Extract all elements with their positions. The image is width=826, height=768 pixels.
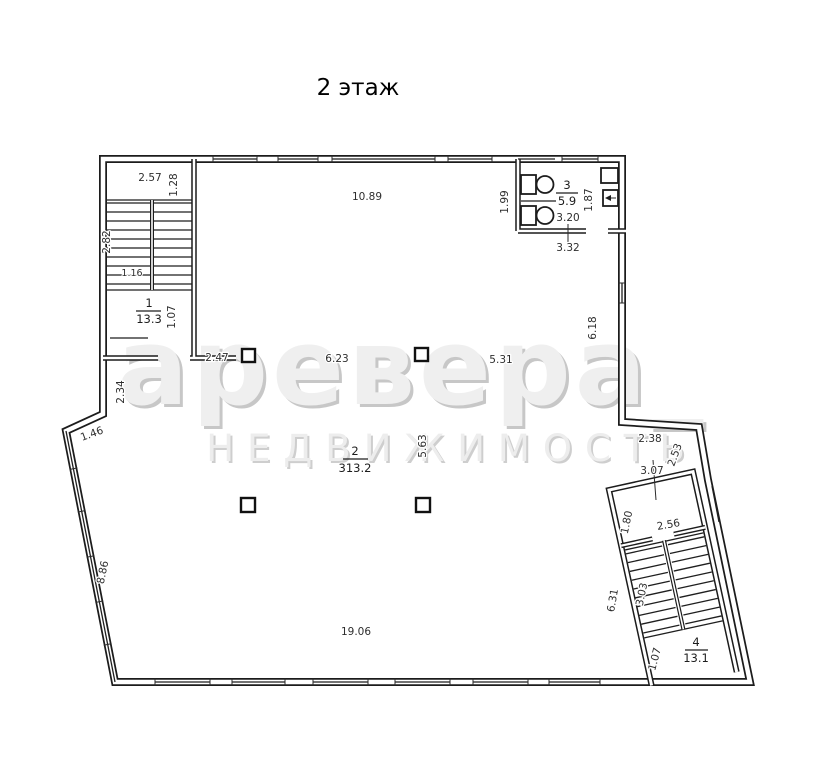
room-2-number: 2 (351, 444, 358, 458)
dim-stair4-vest-depth: 1.80 (619, 510, 636, 535)
column (415, 348, 428, 361)
dim-stair1-exit: 1.07 (166, 305, 178, 328)
dim-stair4-vest-width: 2.56 (656, 517, 681, 533)
dim-stair4-flight: 3.03 (634, 582, 651, 607)
toilet-tank-2 (521, 206, 536, 225)
toilet-bowl-1 (537, 176, 554, 193)
dim-stair1-flight: 2.82 (101, 230, 113, 253)
dim-column-span-2: 5.31 (489, 354, 512, 366)
room-2-area: 313.2 (339, 461, 372, 475)
toilet-tank-1 (521, 175, 536, 194)
toilet-bowl-2 (537, 207, 554, 224)
dim-wc-width: 3.20 (556, 212, 579, 224)
column (416, 498, 430, 512)
dim-right-offset: 2.38 (638, 433, 661, 445)
column (242, 349, 255, 362)
dim-stair4-side: 6.31 (605, 588, 621, 613)
dim-wc-bottom: 3.32 (556, 242, 579, 254)
floor-plan-svg: аревера_ аревера_ НЕДВИЖИМОСТЬ НЕДВИЖИМО… (0, 0, 826, 768)
dim-column-span-1: 6.23 (325, 353, 348, 365)
floor-plan-page: аревера_ аревера_ НЕДВИЖИМОСТЬ НЕДВИЖИМО… (0, 0, 826, 768)
room-3-area: 5.9 (558, 194, 576, 208)
page-title: 2 этаж (317, 75, 400, 101)
column (241, 498, 255, 512)
room-1-area: 13.3 (136, 312, 162, 326)
dim-left-slant: 8.86 (95, 559, 112, 585)
dim-stair1-width: 2.57 (138, 172, 161, 184)
room-4-area: 13.1 (683, 651, 709, 665)
dim-stair4-exit: 1.07 (646, 646, 664, 672)
dim-left-upper: 2.34 (115, 380, 127, 404)
dim-stair4-top: 3.07 (640, 465, 663, 477)
dim-wc-depth: 1.99 (499, 190, 511, 213)
dim-bottom: 19.06 (341, 626, 371, 638)
dim-right-wall: 6.18 (587, 316, 599, 339)
room-4-number: 4 (692, 635, 699, 649)
duct-niche (601, 168, 618, 183)
room-1-number: 1 (145, 296, 152, 310)
dim-hall-mid: 5.63 (417, 434, 429, 457)
dim-wc-right: 1.87 (583, 188, 595, 211)
dim-stair1-inner: 1.16 (121, 268, 142, 279)
dim-stair1-to-column: 2.47 (205, 352, 228, 364)
dim-hall-top: 10.89 (352, 191, 382, 203)
room-3-number: 3 (563, 178, 570, 192)
watermark-caption: НЕДВИЖИМОСТЬ (206, 427, 698, 470)
dim-stair1-landing: 1.28 (168, 173, 180, 196)
